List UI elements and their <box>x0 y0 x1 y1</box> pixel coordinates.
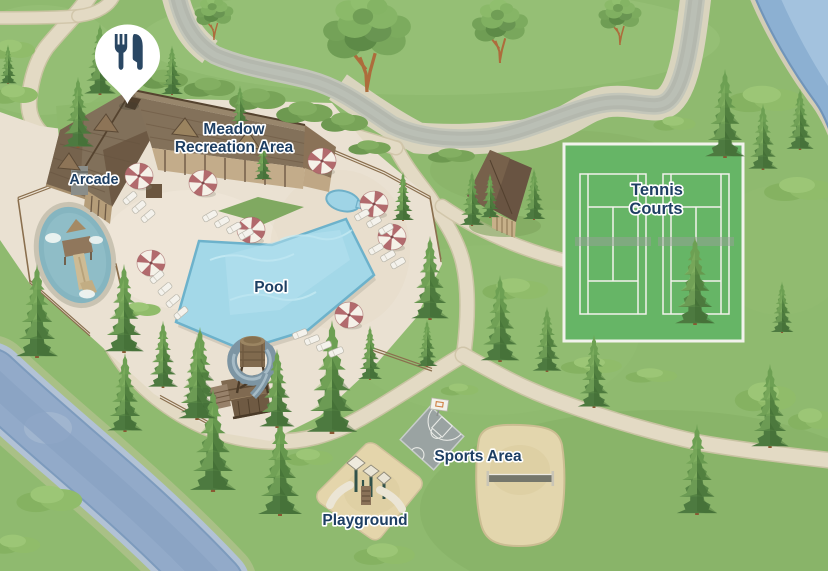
svg-text:Recreation Area: Recreation Area <box>175 139 294 156</box>
svg-text:Playground: Playground <box>322 512 407 529</box>
svg-text:Pool: Pool <box>254 279 288 296</box>
svg-text:Sports Area: Sports Area <box>434 448 522 465</box>
svg-text:Arcade: Arcade <box>69 172 118 188</box>
svg-text:Courts: Courts <box>629 200 682 218</box>
svg-text:Meadow: Meadow <box>203 121 265 138</box>
svg-text:Tennis: Tennis <box>631 181 683 199</box>
